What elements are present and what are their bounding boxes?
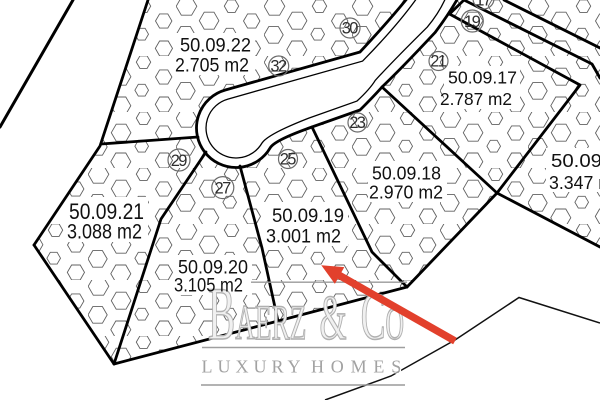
svg-text:27: 27 — [215, 180, 232, 198]
svg-text:21: 21 — [430, 53, 447, 71]
svg-text:50.09.19: 50.09.19 — [272, 206, 344, 227]
svg-text:2.787 m2: 2.787 m2 — [440, 89, 512, 109]
svg-text:50.09.1: 50.09.1 — [551, 151, 600, 171]
svg-text:2.970 m2: 2.970 m2 — [369, 183, 443, 203]
svg-text:32: 32 — [270, 58, 287, 76]
svg-text:17: 17 — [475, 0, 492, 10]
svg-text:HOMES: HOMES — [311, 356, 408, 376]
svg-text:19: 19 — [464, 13, 481, 31]
svg-text:50.09.18: 50.09.18 — [372, 164, 441, 184]
svg-text:3.088 m2: 3.088 m2 — [67, 221, 142, 244]
svg-text:LUXURY: LUXURY — [202, 356, 306, 376]
svg-text:50.09.22: 50.09.22 — [180, 36, 251, 57]
svg-text:3.001 m2: 3.001 m2 — [266, 227, 341, 248]
svg-text:25: 25 — [280, 151, 297, 169]
svg-text:3.347 m: 3.347 m — [549, 173, 600, 193]
svg-text:3.105 m2: 3.105 m2 — [174, 276, 243, 297]
svg-text:50.09.17: 50.09.17 — [448, 68, 517, 88]
svg-text:23: 23 — [349, 114, 366, 132]
svg-text:2.705 m2: 2.705 m2 — [175, 56, 249, 77]
svg-text:29: 29 — [171, 152, 188, 170]
svg-text:30: 30 — [342, 20, 359, 38]
